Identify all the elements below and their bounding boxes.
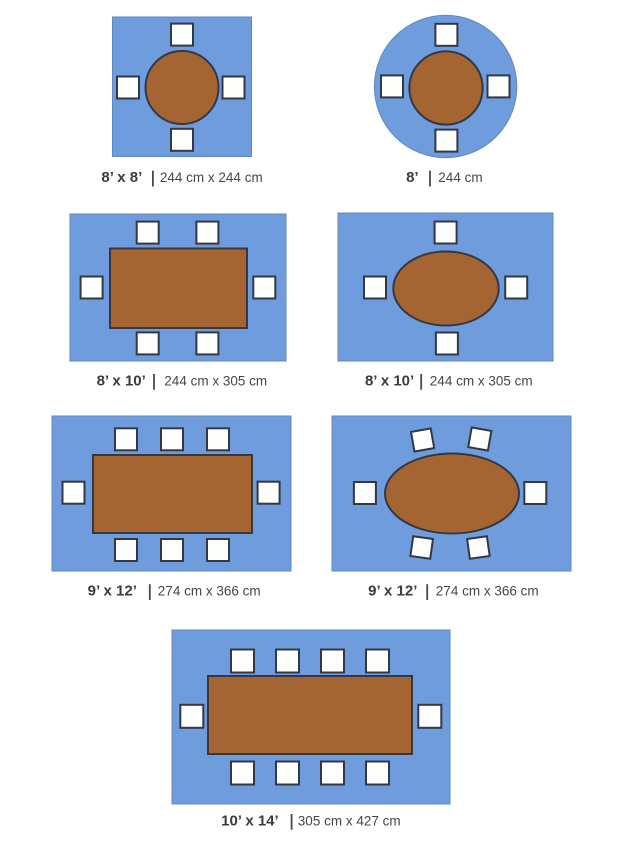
svg-text:8’ x 8’: 8’ x 8’ <box>101 169 142 186</box>
svg-text:244 cm: 244 cm <box>438 170 482 185</box>
svg-text:274 cm x 366 cm: 274 cm x 366 cm <box>158 584 261 599</box>
svg-text:244 cm x 305 cm: 244 cm x 305 cm <box>430 373 533 388</box>
svg-text:9’ x 12’: 9’ x 12’ <box>368 583 417 600</box>
svg-text:8’: 8’ <box>406 169 419 186</box>
svg-text:9’ x 12’: 9’ x 12’ <box>88 583 137 600</box>
svg-text:244 cm x 305 cm: 244 cm x 305 cm <box>164 373 267 388</box>
svg-text:244 cm x 244 cm: 244 cm x 244 cm <box>160 170 263 185</box>
svg-text:8’ x 10’: 8’ x 10’ <box>97 372 146 389</box>
svg-text:8’ x 10’: 8’ x 10’ <box>365 372 414 389</box>
svg-text:305 cm x 427 cm: 305 cm x 427 cm <box>298 813 401 828</box>
svg-text:10’ x 14’: 10’ x 14’ <box>221 812 279 829</box>
svg-text:274 cm x 366 cm: 274 cm x 366 cm <box>436 584 539 599</box>
